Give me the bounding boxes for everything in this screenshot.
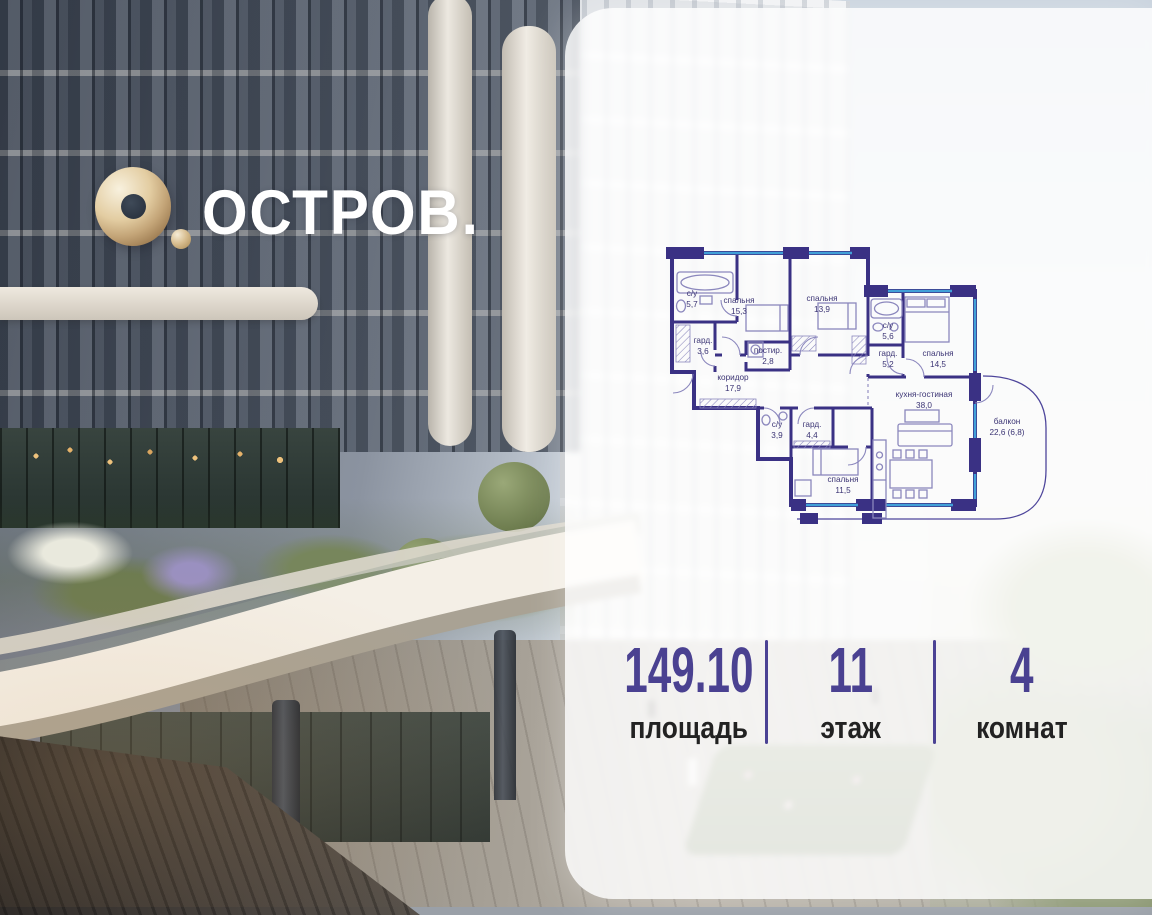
room-label: спальня [827,475,858,484]
room-label: гард. [803,420,822,429]
room-area: 17,9 [725,384,741,393]
room-area: 3,9 [771,431,783,440]
stat-rooms: 4 комнат [936,638,1108,743]
floorplan: с/у 5,7 спальня 15,3 гард. 3,6 постир. 2… [650,240,1080,540]
room-area: 5,2 [882,360,894,369]
room-label: гард. [879,349,898,358]
stat-area-label: площадь [630,712,749,743]
apartment-card-panel[interactable]: с/у 5,7 спальня 15,3 гард. 3,6 постир. 2… [565,8,1152,899]
room-label: гард. [694,336,713,345]
room-label: спальня [922,349,953,358]
room-area: 5,7 [686,300,698,309]
terrace-tree [392,538,458,600]
room-label: с/у [772,420,783,429]
room-area: 3,6 [697,347,709,356]
balcony-band [0,287,318,320]
room-area: 38,0 [916,401,932,410]
room-label: с/у [687,289,698,298]
terrace-tree [478,462,550,532]
stat-rooms-value: 4 [1010,638,1033,702]
stat-floor: 11 этаж [768,638,933,743]
room-area: 13,9 [814,305,830,314]
room-label: спальня [806,294,837,303]
stat-area: 149.10 площадь [613,638,765,743]
room-label: коридор [717,373,749,382]
room-area: 14,5 [930,360,946,369]
room-label: спальня [723,296,754,305]
room-area: 11,5 [835,486,851,495]
facade-pylon [502,26,556,452]
room-label: кухня-гостиная [896,390,953,399]
stat-floor-label: этаж [820,712,880,743]
brand-wordmark: ОСТРОВ. [202,182,480,245]
room-area: 15,3 [731,307,747,316]
room-label: с/у [883,321,894,330]
room-area: 4,4 [806,431,818,440]
room-label: постир. [754,346,782,355]
brand-logo-dot-icon [171,229,191,249]
stat-area-value: 149.10 [624,638,753,702]
room-area: 5,6 [882,332,894,341]
room-area: 22,6 (6,8) [989,428,1024,437]
stat-floor-value: 11 [828,638,873,702]
bridge-column [494,630,516,800]
wall-piers [666,247,981,511]
room-area: 2,8 [762,357,774,366]
brand-logo-torus-icon [95,167,171,246]
stat-rooms-label: комнат [976,712,1068,743]
apartment-stats: 149.10 площадь 11 этаж 4 комнат [613,638,1113,744]
room-label: балкон [994,417,1021,426]
